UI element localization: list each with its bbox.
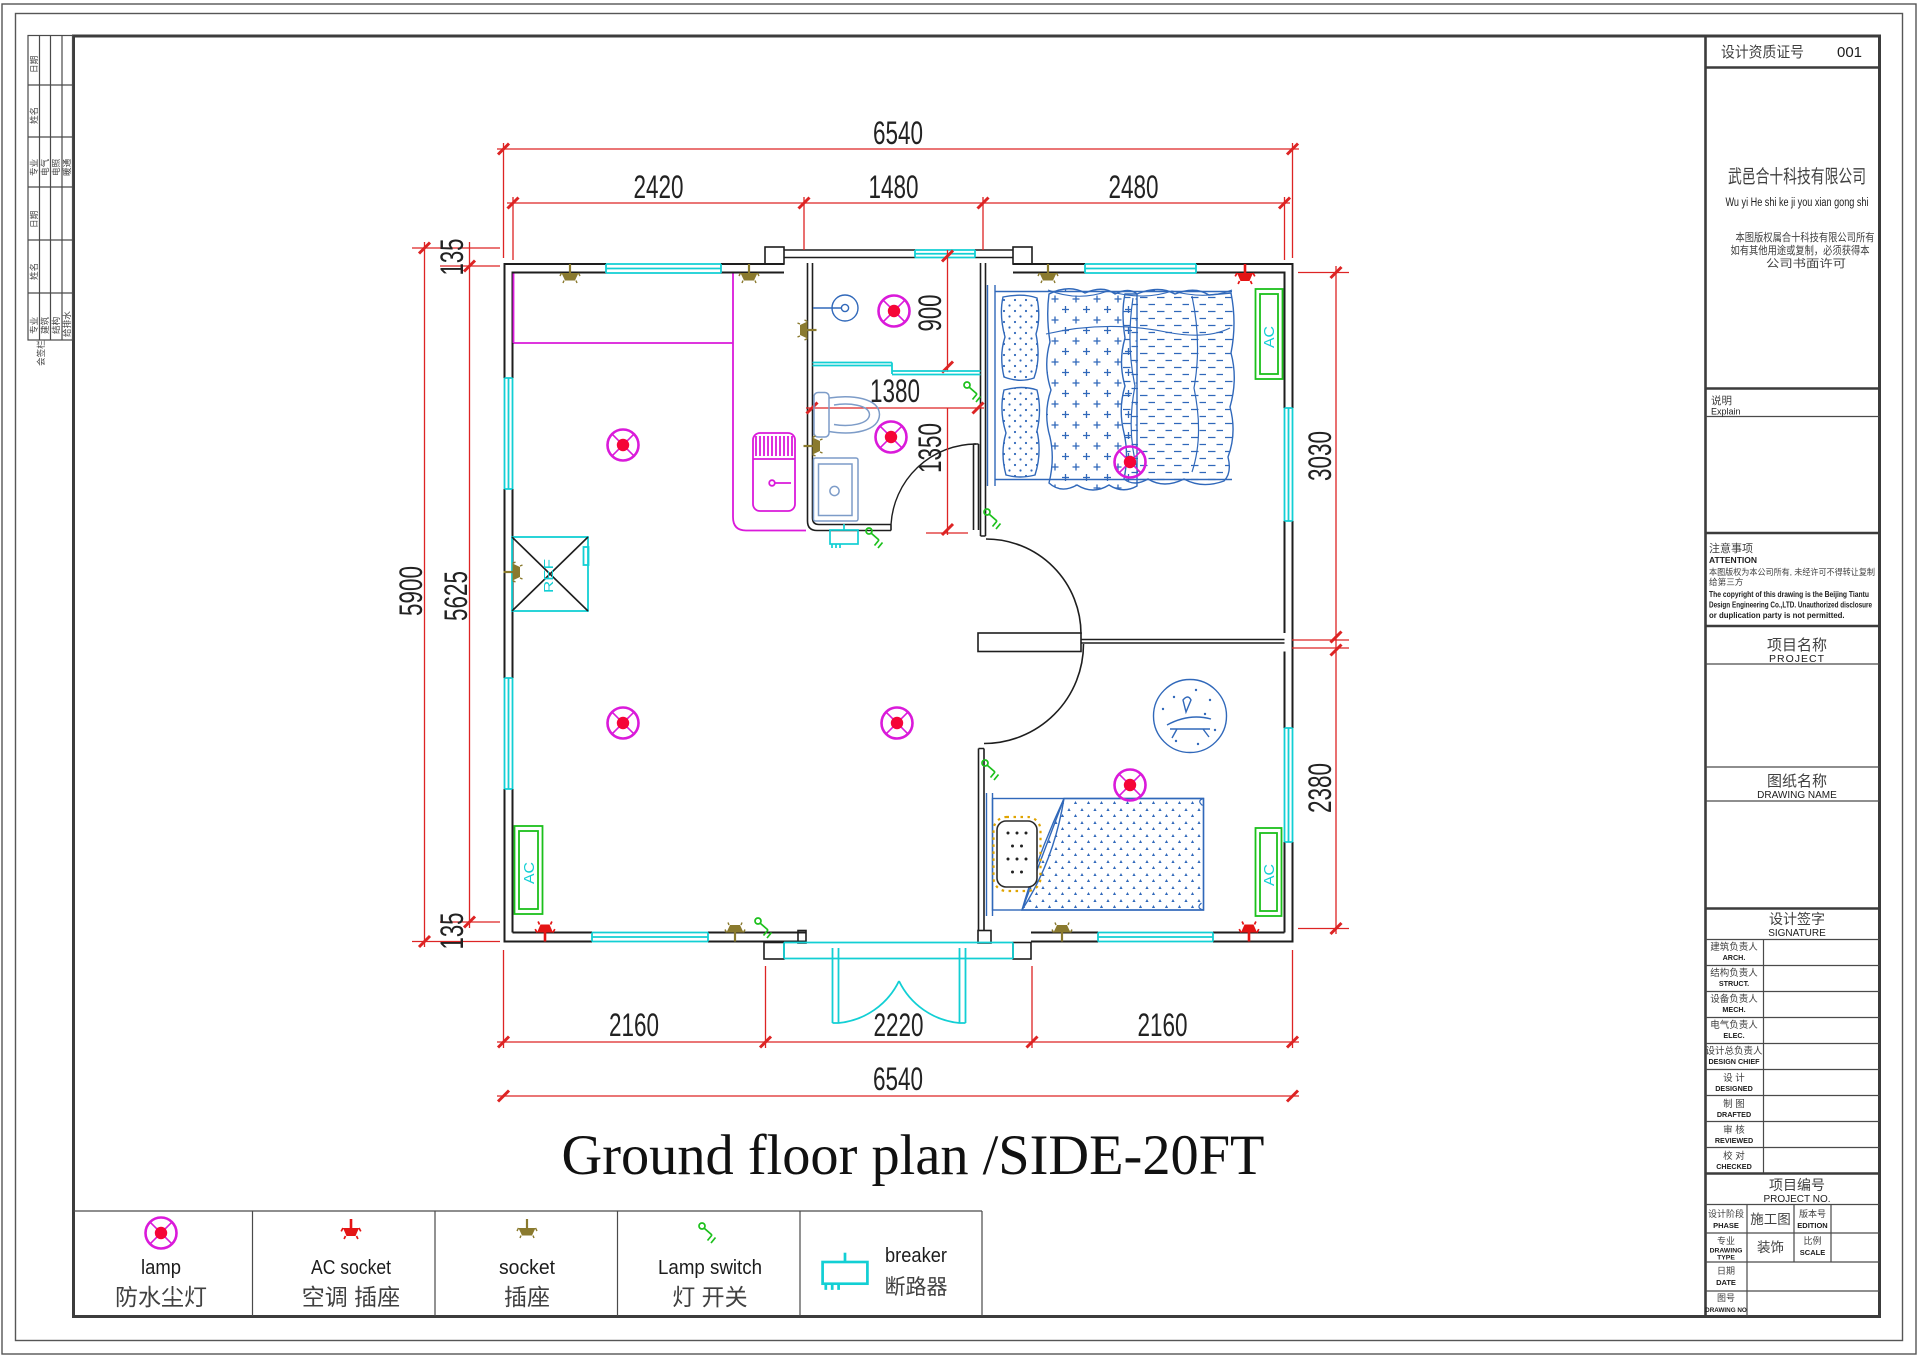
svg-text:建筑: 建筑 <box>39 316 50 334</box>
svg-text:1480: 1480 <box>869 169 919 205</box>
svg-text:灯 开关: 灯 开关 <box>672 1284 747 1310</box>
svg-text:REF: REF <box>541 559 556 593</box>
svg-text:姓名: 姓名 <box>28 107 39 124</box>
svg-text:2220: 2220 <box>874 1007 924 1043</box>
svg-text:1380: 1380 <box>870 373 920 409</box>
svg-text:防水尘灯: 防水尘灯 <box>115 1284 207 1310</box>
svg-text:暖通: 暖通 <box>62 158 72 176</box>
svg-text:插座: 插座 <box>504 1284 550 1310</box>
svg-text:6540: 6540 <box>873 1061 923 1097</box>
svg-text:结构: 结构 <box>50 316 61 334</box>
svg-text:Design Engineering Co.,LTD. Un: Design Engineering Co.,LTD. Unauthorized… <box>1709 601 1873 610</box>
svg-text:2480: 2480 <box>1109 169 1159 205</box>
svg-text:6540: 6540 <box>873 115 923 151</box>
svg-text:日期: 日期 <box>1717 1266 1735 1276</box>
svg-text:DESIGN CHIEF: DESIGN CHIEF <box>1708 1057 1760 1066</box>
svg-text:ELEC.: ELEC. <box>1723 1031 1744 1040</box>
svg-text:MECH.: MECH. <box>1722 1005 1745 1014</box>
svg-text:空调 插座: 空调 插座 <box>302 1284 400 1310</box>
svg-text:135: 135 <box>434 239 470 276</box>
svg-text:会签栏: 会签栏 <box>35 340 46 366</box>
svg-text:施工图: 施工图 <box>1750 1212 1791 1227</box>
svg-text:2160: 2160 <box>1138 1007 1188 1043</box>
svg-text:135: 135 <box>434 913 470 950</box>
svg-text:校 对: 校 对 <box>1723 1150 1745 1162</box>
svg-text:REVIEWED: REVIEWED <box>1715 1136 1753 1145</box>
svg-text:2420: 2420 <box>634 169 684 205</box>
svg-text:Lamp switch: Lamp switch <box>658 1257 762 1279</box>
svg-text:Wu yi He shi ke ji you xian go: Wu yi He shi ke ji you xian gong shi <box>1726 197 1869 209</box>
svg-text:PHASE: PHASE <box>1713 1221 1739 1230</box>
svg-text:专业: 专业 <box>28 158 39 176</box>
svg-text:电气负责人: 电气负责人 <box>1710 1019 1758 1031</box>
svg-text:2380: 2380 <box>1302 763 1338 813</box>
svg-text:001: 001 <box>1837 44 1862 61</box>
svg-text:AC socket: AC socket <box>311 1257 391 1279</box>
svg-text:本图版权属合十科技有限公司所有: 本图版权属合十科技有限公司所有 <box>1736 230 1875 244</box>
svg-text:项目编号: 项目编号 <box>1769 1177 1825 1193</box>
svg-text:武邑合十科技有限公司: 武邑合十科技有限公司 <box>1728 166 1866 187</box>
svg-text:CHECKED: CHECKED <box>1716 1162 1752 1171</box>
svg-text:版本号: 版本号 <box>1799 1208 1826 1219</box>
svg-text:设计阶段: 设计阶段 <box>1708 1208 1744 1219</box>
svg-text:AC: AC <box>1261 326 1278 348</box>
svg-text:图号: 图号 <box>1717 1293 1735 1303</box>
svg-text:EDITION: EDITION <box>1797 1221 1827 1230</box>
svg-text:3030: 3030 <box>1302 431 1338 481</box>
svg-text:结构负责人: 结构负责人 <box>1710 967 1758 979</box>
svg-text:AC: AC <box>521 862 538 884</box>
svg-text:PROJECT: PROJECT <box>1769 653 1825 665</box>
svg-text:项目名称: 项目名称 <box>1767 637 1827 654</box>
svg-text:公司书面许可: 公司书面许可 <box>1766 257 1846 270</box>
svg-text:AC: AC <box>1261 864 1278 886</box>
svg-text:审 核: 审 核 <box>1723 1124 1745 1136</box>
svg-text:TYPE: TYPE <box>1717 1255 1735 1262</box>
svg-text:设 计: 设 计 <box>1723 1072 1745 1084</box>
svg-text:Ground floor plan /SIDE-20FT: Ground floor plan /SIDE-20FT <box>562 1124 1265 1187</box>
svg-text:The copyright of this drawing: The copyright of this drawing is the Bei… <box>1709 590 1869 599</box>
svg-text:给排水: 给排水 <box>61 311 72 337</box>
svg-text:DESIGNED: DESIGNED <box>1715 1084 1753 1093</box>
svg-text:图纸名称: 图纸名称 <box>1767 773 1827 790</box>
svg-text:ARCH.: ARCH. <box>1723 953 1746 962</box>
svg-text:DRAWING NO: DRAWING NO <box>1705 1307 1747 1314</box>
svg-text:说明: 说明 <box>1711 394 1732 407</box>
svg-text:lamp: lamp <box>141 1257 181 1279</box>
svg-text:如有其他用途或复制，必须获得本: 如有其他用途或复制，必须获得本 <box>1731 243 1870 257</box>
svg-text:注意事项: 注意事项 <box>1709 541 1753 555</box>
svg-text:姓名: 姓名 <box>28 263 39 280</box>
svg-text:1350: 1350 <box>912 423 948 473</box>
svg-text:DRAWING: DRAWING <box>1710 1248 1743 1255</box>
svg-text:socket: socket <box>499 1257 555 1279</box>
svg-text:2160: 2160 <box>609 1007 659 1043</box>
svg-text:专业: 专业 <box>28 316 39 334</box>
svg-text:断路器: 断路器 <box>885 1276 948 1299</box>
svg-text:电照: 电照 <box>50 158 61 176</box>
svg-text:ATTENTION: ATTENTION <box>1709 555 1757 565</box>
svg-text:5625: 5625 <box>438 571 474 621</box>
svg-text:breaker: breaker <box>885 1245 947 1267</box>
svg-text:SIGNATURE: SIGNATURE <box>1768 928 1826 939</box>
svg-text:SCALE: SCALE <box>1800 1248 1825 1257</box>
svg-text:日期: 日期 <box>29 211 39 228</box>
svg-text:建筑负责人: 建筑负责人 <box>1710 941 1758 953</box>
svg-text:DATE: DATE <box>1716 1278 1736 1287</box>
svg-text:or duplication party is not pe: or duplication party is not permitted. <box>1709 611 1845 620</box>
svg-text:900: 900 <box>912 295 948 332</box>
svg-text:比例: 比例 <box>1803 1235 1821 1246</box>
svg-text:5900: 5900 <box>393 566 429 616</box>
svg-text:制 图: 制 图 <box>1723 1098 1745 1110</box>
svg-text:设备负责人: 设备负责人 <box>1710 993 1758 1005</box>
svg-text:给第三方: 给第三方 <box>1709 576 1744 587</box>
svg-text:设计总负责人: 设计总负责人 <box>1705 1045 1763 1057</box>
svg-text:专业: 专业 <box>1717 1235 1735 1246</box>
svg-text:装饰: 装饰 <box>1757 1240 1784 1255</box>
svg-text:电气: 电气 <box>39 158 50 176</box>
svg-text:本图版权为本公司所有, 未经许可不得转让复制: 本图版权为本公司所有, 未经许可不得转让复制 <box>1709 566 1875 577</box>
svg-text:DRAFTED: DRAFTED <box>1717 1110 1751 1119</box>
svg-text:日期: 日期 <box>29 56 39 73</box>
svg-text:PROJECT NO.: PROJECT NO. <box>1763 1194 1830 1205</box>
svg-text:DRAWING NAME: DRAWING NAME <box>1757 790 1837 801</box>
svg-text:设计签字: 设计签字 <box>1769 911 1825 927</box>
svg-text:设计资质证号: 设计资质证号 <box>1721 44 1804 61</box>
svg-text:Explain: Explain <box>1711 407 1741 417</box>
svg-text:STRUCT.: STRUCT. <box>1719 979 1749 988</box>
